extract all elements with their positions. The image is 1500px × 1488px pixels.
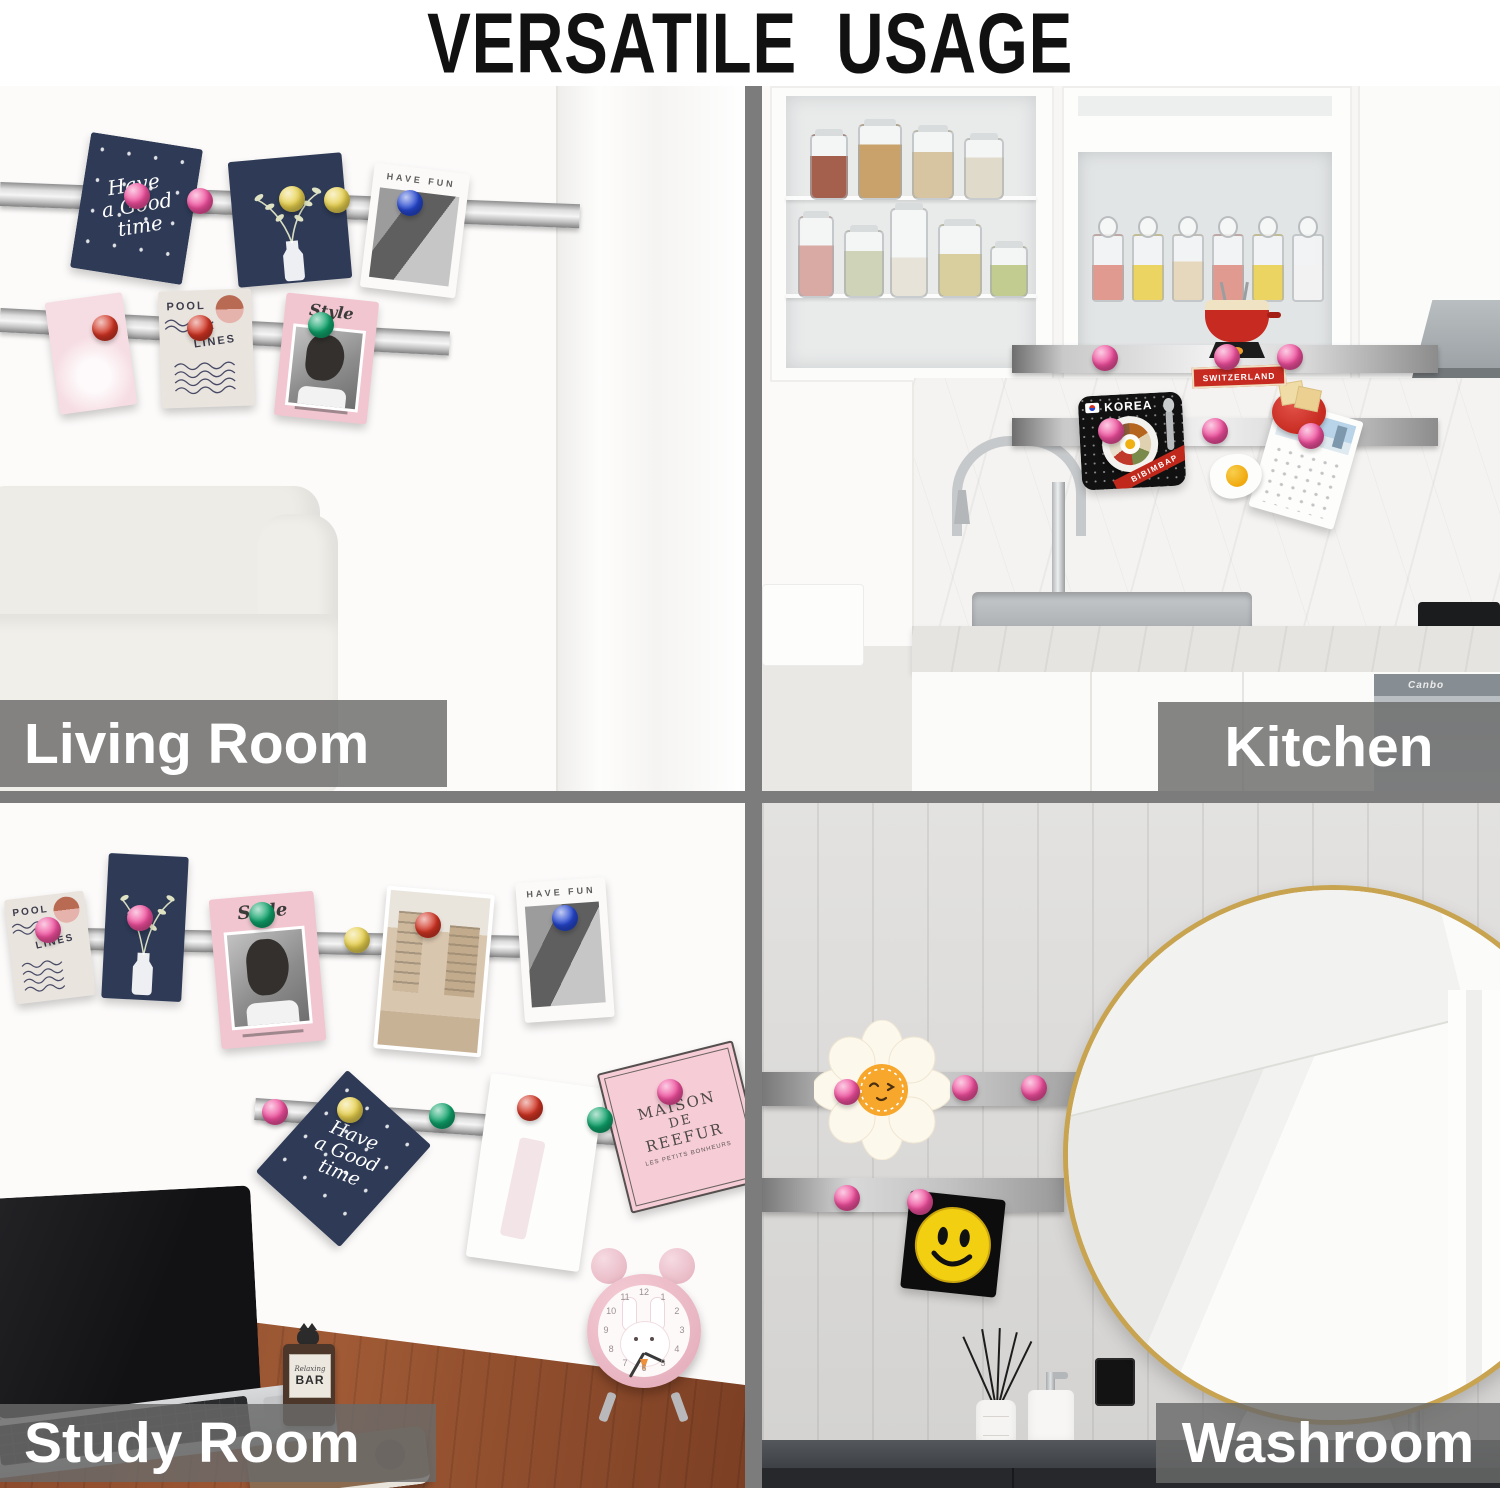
wall-mirror (1063, 885, 1500, 1425)
scene-label-study-room: Study Room (0, 1404, 436, 1482)
card-have-fun-title: HAVE FUN (516, 884, 606, 900)
cabinet-left (770, 86, 1054, 382)
calendar-photo-building (1332, 425, 1348, 449)
dishwasher-control-band: Canbo (1374, 674, 1500, 696)
pantry-jar (990, 246, 1028, 298)
clock-numeral: 3 (675, 1325, 689, 1335)
scene-label-living-room: Living Room (0, 700, 447, 787)
city-building (444, 925, 480, 997)
magnet (587, 1107, 613, 1133)
magnet (262, 1099, 288, 1125)
clock-numeral: 11 (618, 1292, 632, 1302)
vertical-divider (745, 86, 762, 1488)
switzerland-ribbon: SWITZERLAND (1192, 364, 1287, 388)
magnet (279, 186, 305, 212)
clock-numeral: 7 (618, 1358, 632, 1368)
dishwasher-brand: Canbo (1408, 680, 1444, 691)
cheese-cube (1294, 386, 1322, 413)
spice-bottle (1132, 234, 1164, 302)
korea-magnet: KOREA BIBIMBAP (1078, 391, 1187, 490)
korea-spoon-head (1163, 398, 1175, 413)
curtain (556, 86, 745, 792)
clock-numeral: 4 (670, 1344, 684, 1354)
clock-numeral: 2 (670, 1306, 684, 1316)
pool-waves (158, 288, 255, 408)
clock-leg (670, 1391, 689, 1422)
style-photo-shirt (246, 999, 300, 1025)
sign-relaxing-text: Relaxing (294, 1365, 325, 1373)
clock-numeral: 9 (599, 1325, 613, 1335)
kitchen-floor (762, 646, 912, 792)
magnet (35, 917, 61, 943)
cat-ear (307, 1323, 317, 1330)
card-city-photo (373, 886, 495, 1058)
korea-flag-icon (1085, 403, 1100, 414)
magnet (324, 187, 350, 213)
korea-spoon (1165, 410, 1174, 450)
style-photo-shirt (297, 385, 347, 408)
magnet (92, 315, 118, 341)
alarm-clock: 121234567891011 (585, 1232, 703, 1428)
card-good-time: Have a Good time (256, 1070, 432, 1247)
clock-numeral: 1 (656, 1292, 670, 1302)
header: VERSATILE USAGE (0, 0, 1500, 86)
clock-numeral: 5 (656, 1358, 670, 1368)
clock-leg (598, 1391, 617, 1422)
dispenser-spout (1054, 1372, 1068, 1379)
white-card-tissue (500, 1137, 546, 1240)
magnet (657, 1079, 683, 1105)
card-have-fun: HAVE FUN (360, 163, 471, 299)
card-pool-lines: POOL LINES (4, 891, 96, 1005)
washroom-scene: Washroom (762, 800, 1500, 1488)
magnet (308, 312, 334, 338)
bunny-eye (634, 1337, 638, 1341)
page-title: VERSATILE USAGE (427, 0, 1073, 92)
magnet (127, 905, 153, 931)
magnet (187, 188, 213, 214)
faucet-arc (952, 436, 1086, 536)
cabinet-seam (1090, 672, 1092, 792)
cabinet-seam-dark (1012, 1468, 1014, 1488)
laptop-screen (0, 1185, 262, 1423)
magnet (1298, 423, 1324, 449)
style-photo-panel (224, 926, 313, 1031)
pantry-jar (938, 224, 982, 298)
card-have-fun: HAVE FUN (515, 877, 615, 1023)
pantry-jar (810, 134, 848, 200)
study-room-scene: POOL LINES (0, 800, 745, 1488)
korea-text: KOREA (1104, 398, 1153, 415)
card-pink-blank (45, 292, 138, 415)
magnet (249, 902, 275, 928)
magnet (1277, 344, 1303, 370)
magnet (1021, 1075, 1047, 1101)
pantry-jar (844, 230, 884, 298)
sign-label: Relaxing BAR (289, 1354, 331, 1398)
style-caption-line (243, 1029, 304, 1037)
magnet (1092, 345, 1118, 371)
card-pool-lines: POOL LINES (158, 288, 255, 408)
magnet (517, 1095, 543, 1121)
pool-waves (4, 891, 96, 1005)
fondue-magnet: SWITZERLAND (1192, 282, 1282, 392)
pantry-jar (964, 138, 1004, 200)
sign-bar-text: BAR (296, 1373, 325, 1387)
cabinet-right-top-glass (1078, 96, 1332, 116)
bunny-eye (650, 1337, 654, 1341)
clock-face: 121234567891011 (598, 1285, 690, 1377)
scene-label-kitchen: Kitchen (1158, 702, 1500, 791)
clock-numeral: 8 (604, 1344, 618, 1354)
maison-inner-border (604, 1047, 745, 1206)
magnet (187, 315, 213, 341)
magnet (552, 905, 578, 931)
magnet (344, 927, 370, 953)
magnet (834, 1185, 860, 1211)
horizontal-divider (0, 791, 1500, 803)
clock-numeral: 12 (637, 1287, 651, 1297)
magnet (952, 1075, 978, 1101)
pantry-jar (890, 208, 928, 298)
fondue-pot (1205, 310, 1269, 342)
magnet (1214, 344, 1240, 370)
magnet (907, 1189, 933, 1215)
card-maison: MAISON DE REEFUR LES PETITS BONHEURS (597, 1040, 745, 1214)
leaves-vase-illustration (228, 152, 353, 287)
kitchen-scene: SWITZERLAND KOREA BIBIMBAP (762, 86, 1500, 792)
magnet (834, 1079, 860, 1105)
magnet (397, 190, 423, 216)
pantry-jar (912, 130, 954, 200)
fondue-pot-handle (1267, 312, 1281, 318)
magnet (337, 1097, 363, 1123)
pantry-jar (798, 216, 834, 298)
clock-numeral: 10 (604, 1306, 618, 1316)
spice-bottle (1092, 234, 1124, 302)
korea-flag-circle (1089, 405, 1095, 411)
diffuser-label (983, 1416, 1009, 1436)
mirror-curtain (1448, 990, 1500, 1420)
product-collage: VERSATILE USAGE Have a Good time (0, 0, 1500, 1488)
magnet (1098, 418, 1124, 444)
pantry-jar (858, 124, 902, 200)
kitchen-white-appliance (762, 584, 864, 666)
card-leaves (228, 152, 353, 287)
living-room-scene: Have a Good time (0, 86, 745, 792)
spice-bottle (1292, 234, 1324, 302)
magnet (429, 1103, 455, 1129)
magnet (124, 183, 150, 209)
cabinet-left-glass (786, 96, 1036, 368)
magnet (415, 912, 441, 938)
clock-numeral: 6 (637, 1363, 651, 1373)
switzerland-text: SWITZERLAND (1202, 370, 1275, 383)
magnet (1202, 418, 1228, 444)
scene-label-washroom: Washroom (1156, 1403, 1500, 1483)
calendar-dots-grid (1258, 443, 1344, 521)
countertop (912, 626, 1500, 672)
diffuser-sticks (976, 1328, 1016, 1408)
egg-magnet (1207, 451, 1265, 502)
